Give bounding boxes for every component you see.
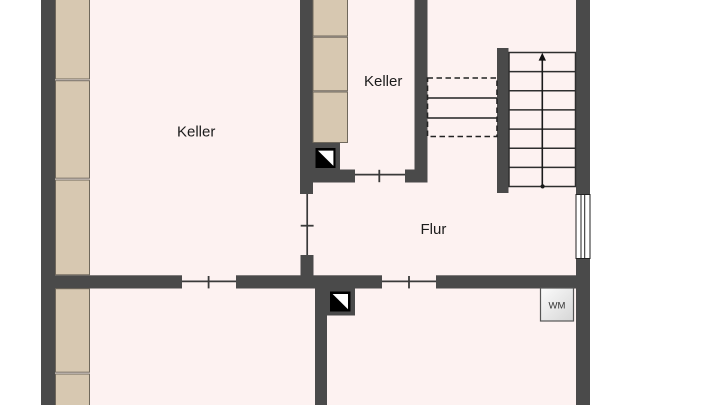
svg-text:Flur: Flur [421, 221, 447, 238]
svg-text:Keller: Keller [177, 123, 215, 140]
svg-text:Keller: Keller [364, 73, 402, 90]
svg-text:WM: WM [549, 300, 566, 311]
